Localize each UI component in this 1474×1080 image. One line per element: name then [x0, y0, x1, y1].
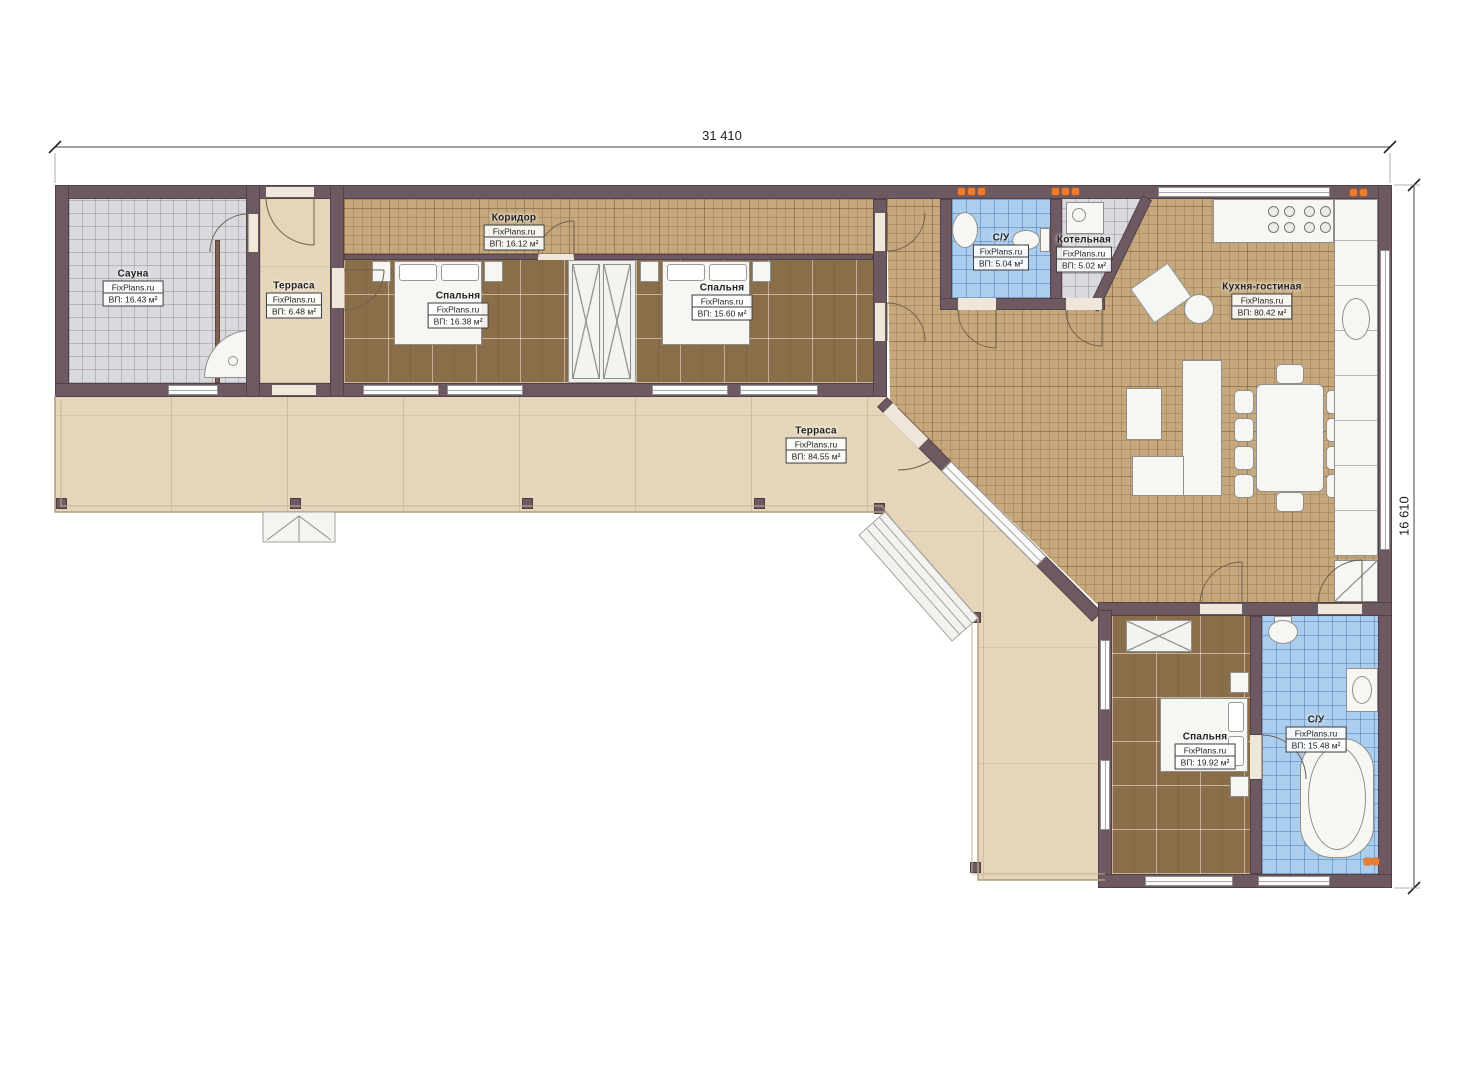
room-label-terrace-big: Терраса FixPlans.ru ВП: 84.55 м²: [786, 426, 847, 465]
room-label-terrace-small: Терраса FixPlans.ru ВП: 6.48 м²: [266, 281, 322, 320]
room-area: ВП: 80.42 м²: [1233, 307, 1292, 319]
boiler-dial: [1072, 208, 1086, 222]
room-name: С/У: [1286, 715, 1347, 726]
room-area: ВП: 5.02 м²: [1057, 260, 1111, 272]
room-name: Сауна: [103, 269, 164, 280]
wall-bottom-wing-bottom: [1098, 874, 1392, 888]
door-gap-hall-corridor: [875, 213, 885, 251]
terrace-post: [970, 612, 981, 623]
window-bedroom2-a: [652, 385, 728, 395]
fridge: [1334, 560, 1378, 602]
door-gap-terrace-corridor: [332, 268, 344, 308]
room-brand: FixPlans.ru: [485, 226, 544, 238]
door-gap-bedroom1: [538, 254, 574, 260]
terrace-post: [56, 498, 67, 509]
terrace-post: [290, 498, 301, 509]
wall-left: [55, 185, 69, 397]
room-area: ВП: 15.48 м²: [1287, 740, 1346, 752]
room-brand: FixPlans.ru: [1176, 745, 1235, 757]
pillow: [441, 264, 479, 281]
wall-corridor-bedrooms: [344, 254, 873, 260]
door-gap-terrace-strip-top: [266, 187, 314, 197]
wardrobe: [603, 264, 631, 379]
window-kitchen-top: [1158, 187, 1330, 197]
room-area: ВП: 5.04 м²: [974, 258, 1028, 270]
door-gap-hall-bedroom2: [875, 303, 885, 341]
burner: [1284, 222, 1295, 233]
room-brand: FixPlans.ru: [267, 294, 321, 306]
wall-wc-top-left: [940, 199, 952, 307]
nightstand: [484, 261, 503, 282]
window-bedroom3-bottom: [1145, 876, 1233, 886]
kitchen-sink: [1342, 298, 1370, 340]
room-brand: FixPlans.ru: [1057, 248, 1111, 260]
room-brand: FixPlans.ru: [1287, 728, 1346, 740]
room-label-kitchen-living: Кухня-гостиная FixPlans.ru ВП: 80.42 м²: [1222, 282, 1301, 321]
room-brand: FixPlans.ru: [693, 296, 752, 308]
dimension-height-label: 16 610: [1397, 496, 1412, 536]
burner: [1320, 222, 1331, 233]
burner: [1304, 222, 1315, 233]
window-bedroom2-b: [740, 385, 818, 395]
room-name: Спальня: [428, 291, 489, 302]
sofa-long: [1182, 360, 1222, 496]
room-info-box: FixPlans.ru ВП: 84.55 м²: [786, 438, 847, 464]
heat-marker: [1072, 188, 1079, 195]
room-name: Терраса: [266, 281, 322, 292]
heat-marker: [1360, 189, 1367, 196]
heat-marker: [1062, 188, 1069, 195]
room-name: Спальня: [1175, 732, 1236, 743]
chair: [1276, 364, 1304, 384]
terrace-post: [754, 498, 765, 509]
room-name: С/У: [973, 233, 1029, 244]
toilet: [1268, 620, 1298, 644]
heat-marker: [1364, 858, 1371, 865]
room-area: ВП: 16.38 м²: [429, 316, 488, 328]
window-kitchen-right: [1380, 250, 1390, 550]
room-label-corridor: Коридор FixPlans.ru ВП: 16.12 м²: [484, 213, 545, 252]
burner: [1304, 206, 1315, 217]
room-info-box: FixPlans.ru ВП: 16.38 м²: [428, 303, 489, 329]
room-area: ВП: 19.92 м²: [1176, 757, 1235, 769]
door-gap-boiler: [1066, 298, 1102, 310]
wall-bedroom3-wc-upper: [1250, 616, 1262, 735]
room-label-boiler: Котельная FixPlans.ru ВП: 5.02 м²: [1056, 235, 1112, 274]
room-brand: FixPlans.ru: [1233, 295, 1292, 307]
dining-table: [1256, 384, 1324, 492]
heat-marker: [1052, 188, 1059, 195]
wardrobe: [572, 264, 600, 379]
kitchen-counter-right: [1334, 199, 1378, 556]
pillow: [399, 264, 437, 281]
pillow: [1228, 702, 1244, 732]
room-info-box: FixPlans.ru ВП: 6.48 м²: [266, 293, 322, 319]
burner: [1268, 206, 1279, 217]
window-bedroom3-left-b: [1100, 760, 1110, 830]
shower-drain: [228, 356, 238, 366]
room-label-sauna: Сауна FixPlans.ru ВП: 16.43 м²: [103, 269, 164, 308]
window-sauna: [168, 385, 218, 395]
room-label-wc-top: С/У FixPlans.ru ВП: 5.04 м²: [973, 233, 1029, 272]
coffee-table: [1126, 388, 1162, 440]
heat-marker: [978, 188, 985, 195]
door-gap-bedroom3-wc: [1250, 735, 1262, 779]
wardrobe: [1126, 620, 1192, 652]
room-label-bedroom-1: Спальня FixPlans.ru ВП: 16.38 м²: [428, 291, 489, 330]
room-name: Коридор: [484, 213, 545, 224]
nightstand: [752, 261, 771, 282]
chair: [1234, 390, 1254, 414]
toilet-tank: [1040, 228, 1050, 252]
terrace-post: [970, 862, 981, 873]
room-brand: FixPlans.ru: [787, 439, 846, 451]
window-bedroom1-b: [447, 385, 523, 395]
room-info-box: FixPlans.ru ВП: 16.43 м²: [103, 281, 164, 307]
terrace-post: [874, 503, 885, 514]
nightstand: [1230, 776, 1249, 797]
room-name: Кухня-гостиная: [1222, 282, 1301, 293]
chair: [1234, 446, 1254, 470]
door-gap-sauna: [248, 214, 258, 252]
room-info-box: FixPlans.ru ВП: 15.48 м²: [1286, 727, 1347, 753]
door-gap-wc-top: [958, 298, 996, 310]
floor-plan-canvas: 31 410 16 610 Сауна FixPlans.ru ВП: 16.4…: [0, 0, 1474, 1080]
window-bedroom3-left-a: [1100, 640, 1110, 710]
wall-bedroom3-wc-lower: [1250, 779, 1262, 874]
room-name: Котельная: [1056, 235, 1112, 246]
room-info-box: FixPlans.ru ВП: 15.60 м²: [692, 295, 753, 321]
room-area: ВП: 16.43 м²: [104, 294, 163, 306]
pillow: [709, 264, 747, 281]
room-label-bedroom-2: Спальня FixPlans.ru ВП: 15.60 м²: [692, 283, 753, 322]
room-area: ВП: 84.55 м²: [787, 451, 846, 463]
heat-marker: [958, 188, 965, 195]
pillow: [667, 264, 705, 281]
heat-marker: [968, 188, 975, 195]
burner: [1320, 206, 1331, 217]
room-info-box: FixPlans.ru ВП: 5.02 м²: [1056, 247, 1112, 273]
room-info-box: FixPlans.ru ВП: 16.12 м²: [484, 225, 545, 251]
nightstand: [1230, 672, 1249, 693]
room-info-box: FixPlans.ru ВП: 5.04 м²: [973, 245, 1029, 271]
nightstand: [640, 261, 659, 282]
room-label-wc-bottom: С/У FixPlans.ru ВП: 15.48 м²: [1286, 715, 1347, 754]
room-brand: FixPlans.ru: [104, 282, 163, 294]
window-bedroom1-a: [363, 385, 439, 395]
chair: [1276, 492, 1304, 512]
dimension-width-label: 31 410: [702, 128, 742, 143]
door-gap-terrace-strip-bottom: [272, 385, 316, 395]
bathtub-inner: [1308, 746, 1366, 850]
window-wc-bottom: [1258, 876, 1330, 886]
terrace-post: [522, 498, 533, 509]
burner: [1268, 222, 1279, 233]
room-info-box: FixPlans.ru ВП: 19.92 м²: [1175, 744, 1236, 770]
heat-marker: [1350, 189, 1357, 196]
room-brand: FixPlans.ru: [429, 304, 488, 316]
door-gap-living-terrace-wing: [1200, 604, 1242, 614]
chair: [1234, 418, 1254, 442]
room-area: ВП: 15.60 м²: [693, 308, 752, 320]
sink: [1352, 676, 1372, 704]
floor-corridor: [344, 199, 873, 254]
side-table: [1184, 294, 1214, 324]
heat-marker: [1372, 858, 1379, 865]
chair: [1234, 474, 1254, 498]
room-info-box: FixPlans.ru ВП: 80.42 м²: [1232, 294, 1293, 320]
room-name: Терраса: [786, 426, 847, 437]
room-brand: FixPlans.ru: [974, 246, 1028, 258]
sofa-chaise: [1132, 456, 1184, 496]
room-area: ВП: 16.12 м²: [485, 238, 544, 250]
room-label-bedroom-3: Спальня FixPlans.ru ВП: 19.92 м²: [1175, 732, 1236, 771]
burner: [1284, 206, 1295, 217]
nightstand: [372, 261, 391, 282]
room-area: ВП: 6.48 м²: [267, 306, 321, 318]
door-gap-living-wc-bottom: [1318, 604, 1362, 614]
room-name: Спальня: [692, 283, 753, 294]
